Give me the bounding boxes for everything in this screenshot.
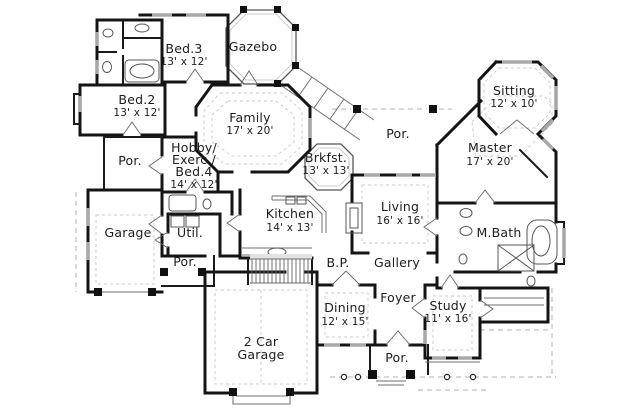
room-label-2car-2: Garage: [238, 347, 285, 362]
covered-walkway: [282, 66, 374, 140]
room-dims-dining: 12' x 15': [321, 316, 368, 328]
floor-plan-drawing: Bed.3 13' x 12' Gazebo Bed.2 13' x 12' F…: [0, 0, 620, 415]
room-label-foyer: Foyer: [380, 290, 416, 305]
room-label-study: Study: [429, 298, 466, 313]
room-label-brkfst: Brkfst.: [305, 150, 347, 165]
room-dims-living: 16' x 16': [376, 215, 423, 227]
room-dims-family: 17' x 20': [226, 125, 273, 137]
walls: [74, 15, 564, 393]
room-label-sitting: Sitting: [493, 83, 535, 98]
room-dims-bed3: 13' x 12': [160, 56, 207, 68]
staircase: [250, 254, 312, 283]
room-dims-sitting: 12' x 10': [490, 98, 537, 110]
floor-plan-page: Bed.3 13' x 12' Gazebo Bed.2 13' x 12' F…: [0, 0, 620, 415]
room-label-family: Family: [229, 110, 271, 125]
room-label-dining: Dining: [324, 300, 366, 315]
room-label-living: Living: [381, 199, 419, 214]
room-label-kitchen: Kitchen: [266, 206, 314, 221]
room-label-bp: B.P.: [327, 255, 350, 270]
room-label-porch-garage: Por.: [173, 254, 197, 269]
room-dims-kitchen: 14' x 13': [266, 222, 313, 234]
room-label-gallery: Gallery: [374, 255, 420, 270]
room-label-master: Master: [468, 140, 513, 155]
room-label-porch-left: Por.: [118, 153, 142, 168]
room-dims-hobby: 14' x 12': [170, 179, 217, 191]
room-label-util: Util.: [177, 225, 203, 240]
room-dims-master: 17' x 20': [466, 156, 513, 168]
room-label-mbath: M.Bath: [476, 225, 521, 240]
room-dims-brkfst: 13' x 13': [302, 165, 349, 177]
room-label-porch-bottom: Por.: [385, 350, 409, 365]
room-label-garage: Garage: [105, 225, 152, 240]
room-label-bed2: Bed.2: [118, 92, 155, 107]
room-label-gazebo: Gazebo: [229, 39, 277, 54]
room-label-hobby-3: Bed.4: [175, 164, 212, 179]
room-dims-bed2: 13' x 12': [113, 107, 160, 119]
room-label-porch-top: Por.: [386, 126, 410, 141]
room-dims-study: 11' x 16': [424, 313, 471, 325]
room-label-bed3: Bed.3: [165, 41, 202, 56]
